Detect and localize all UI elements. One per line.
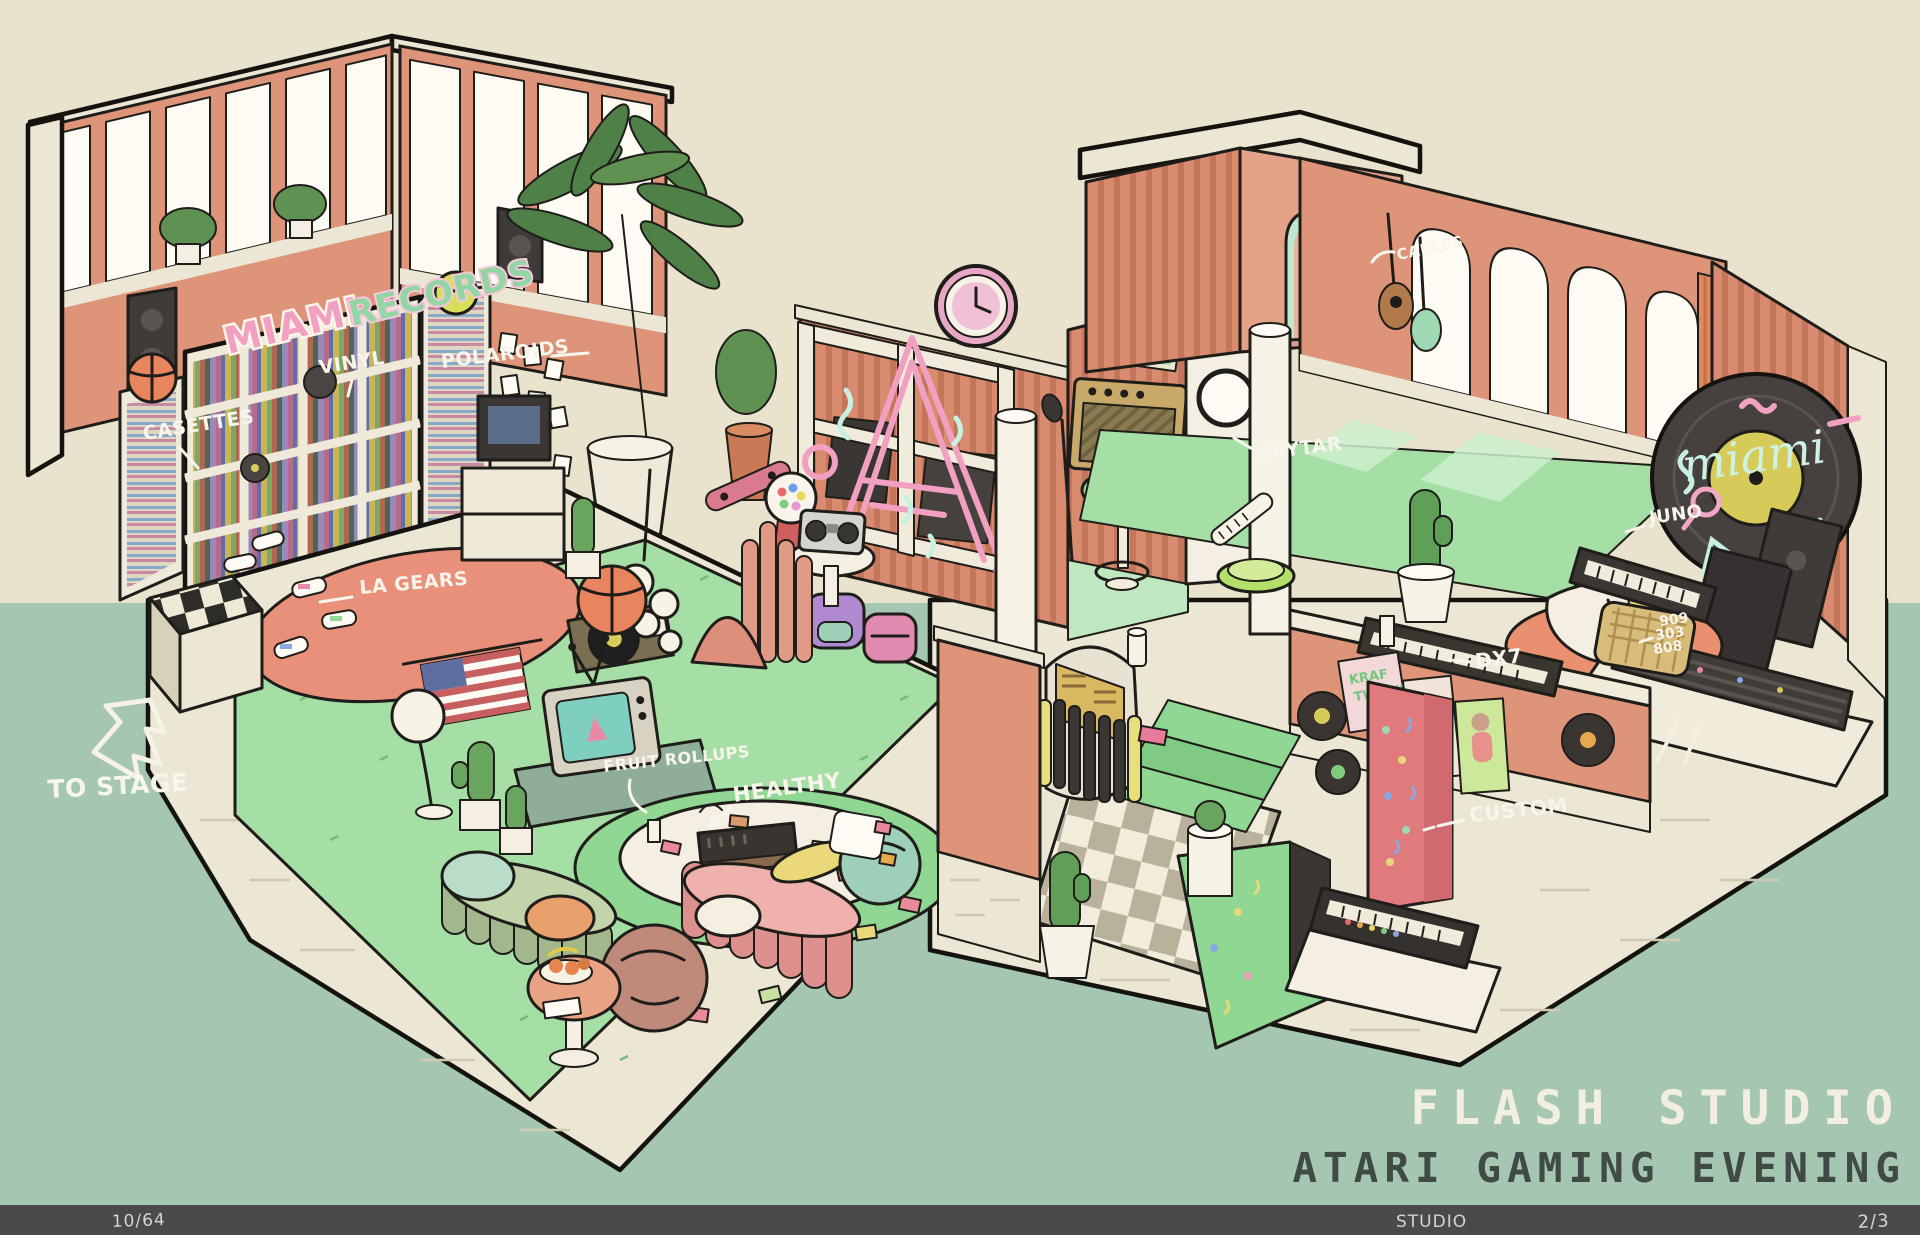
checkered-plinth	[150, 576, 262, 712]
footer-right: 2/3	[1857, 1210, 1890, 1233]
wall-clock	[936, 266, 1016, 346]
arcade-cabinet-custom	[1368, 682, 1452, 912]
cassette-rack	[120, 354, 183, 600]
footer-center: STUDIO	[1396, 1212, 1467, 1232]
pc-desk	[462, 396, 564, 560]
jukebox	[1038, 647, 1141, 802]
outer-wall-left	[28, 117, 62, 475]
orange-ottoman	[526, 896, 594, 940]
mint-pouf	[442, 852, 514, 900]
flash-studio-illustration: miami	[0, 0, 1920, 1235]
door-porthole	[1199, 371, 1253, 425]
boombox	[799, 510, 866, 554]
cup-on-ledge	[1128, 628, 1146, 666]
white-cushion	[696, 896, 760, 936]
half-wall-center	[934, 626, 1044, 962]
cassette-tape-pink	[1139, 726, 1167, 745]
succulent-pedestal	[1188, 801, 1232, 896]
footer-left: 10/64	[111, 1210, 166, 1232]
studio-title: FLASH STUDIO	[1410, 1081, 1906, 1136]
event-subtitle: ATARI GAMING EVENING	[1292, 1144, 1906, 1192]
footer-bar: 10/64 STUDIO 2/3	[0, 1205, 1920, 1235]
